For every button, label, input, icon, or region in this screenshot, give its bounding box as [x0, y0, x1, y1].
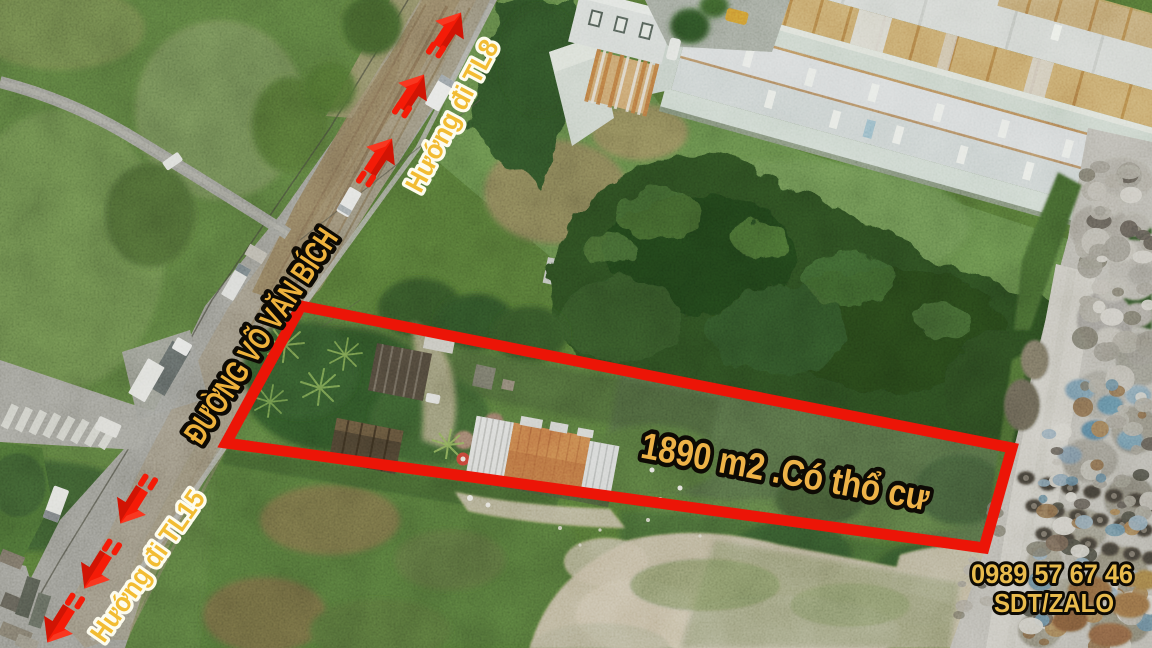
svg-text:0989 57 67 46: 0989 57 67 46 — [971, 559, 1133, 589]
svg-text:SDT/ZALO: SDT/ZALO — [994, 588, 1114, 618]
